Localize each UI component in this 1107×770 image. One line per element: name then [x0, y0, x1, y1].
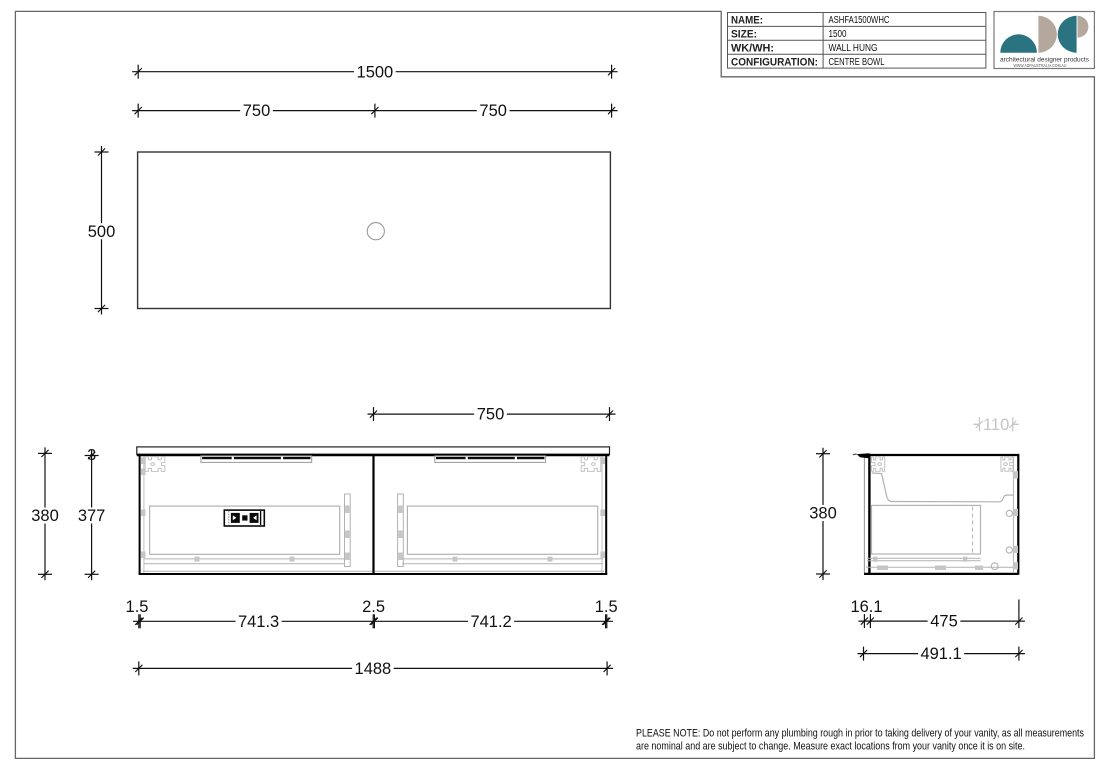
- svg-text:380: 380: [809, 505, 837, 523]
- svg-text:1500: 1500: [829, 29, 847, 40]
- svg-text:475: 475: [930, 613, 958, 631]
- svg-text:SIZE:: SIZE:: [731, 29, 757, 41]
- svg-text:750: 750: [243, 102, 271, 120]
- svg-text:CONFIGURATION:: CONFIGURATION:: [731, 56, 818, 68]
- svg-text:1488: 1488: [355, 660, 392, 678]
- svg-text:741.2: 741.2: [470, 613, 511, 631]
- svg-text:16.1: 16.1: [850, 598, 882, 616]
- svg-text:ASHFA1500WHC: ASHFA1500WHC: [829, 15, 890, 26]
- svg-text:2.5: 2.5: [362, 598, 385, 616]
- svg-text:380: 380: [31, 507, 59, 525]
- svg-text:WALL HUNG: WALL HUNG: [829, 43, 878, 54]
- svg-text:1.5: 1.5: [595, 598, 618, 616]
- svg-text:NAME:: NAME:: [731, 15, 763, 27]
- svg-text:491.1: 491.1: [920, 645, 961, 663]
- svg-text:WWW.ADPAUSTRALIA.COM.AU: WWW.ADPAUSTRALIA.COM.AU: [1014, 63, 1067, 68]
- svg-text:741.3: 741.3: [238, 613, 279, 631]
- svg-text:110: 110: [983, 416, 1009, 434]
- svg-text:3: 3: [87, 447, 96, 464]
- svg-text:PLEASE NOTE: Do not perform an: PLEASE NOTE: Do not perform any plumbing…: [636, 727, 1084, 739]
- svg-text:CENTRE BOWL: CENTRE BOWL: [829, 57, 885, 68]
- svg-text:1.5: 1.5: [126, 598, 149, 616]
- svg-text:are nominal and are subject to: are nominal and are subject to change. M…: [636, 741, 1025, 753]
- svg-text:377: 377: [78, 507, 106, 525]
- svg-text:500: 500: [88, 223, 116, 241]
- svg-text:WK/WH:: WK/WH:: [731, 42, 774, 54]
- svg-text:750: 750: [479, 102, 507, 120]
- svg-text:750: 750: [477, 406, 505, 424]
- svg-text:1500: 1500: [357, 63, 394, 81]
